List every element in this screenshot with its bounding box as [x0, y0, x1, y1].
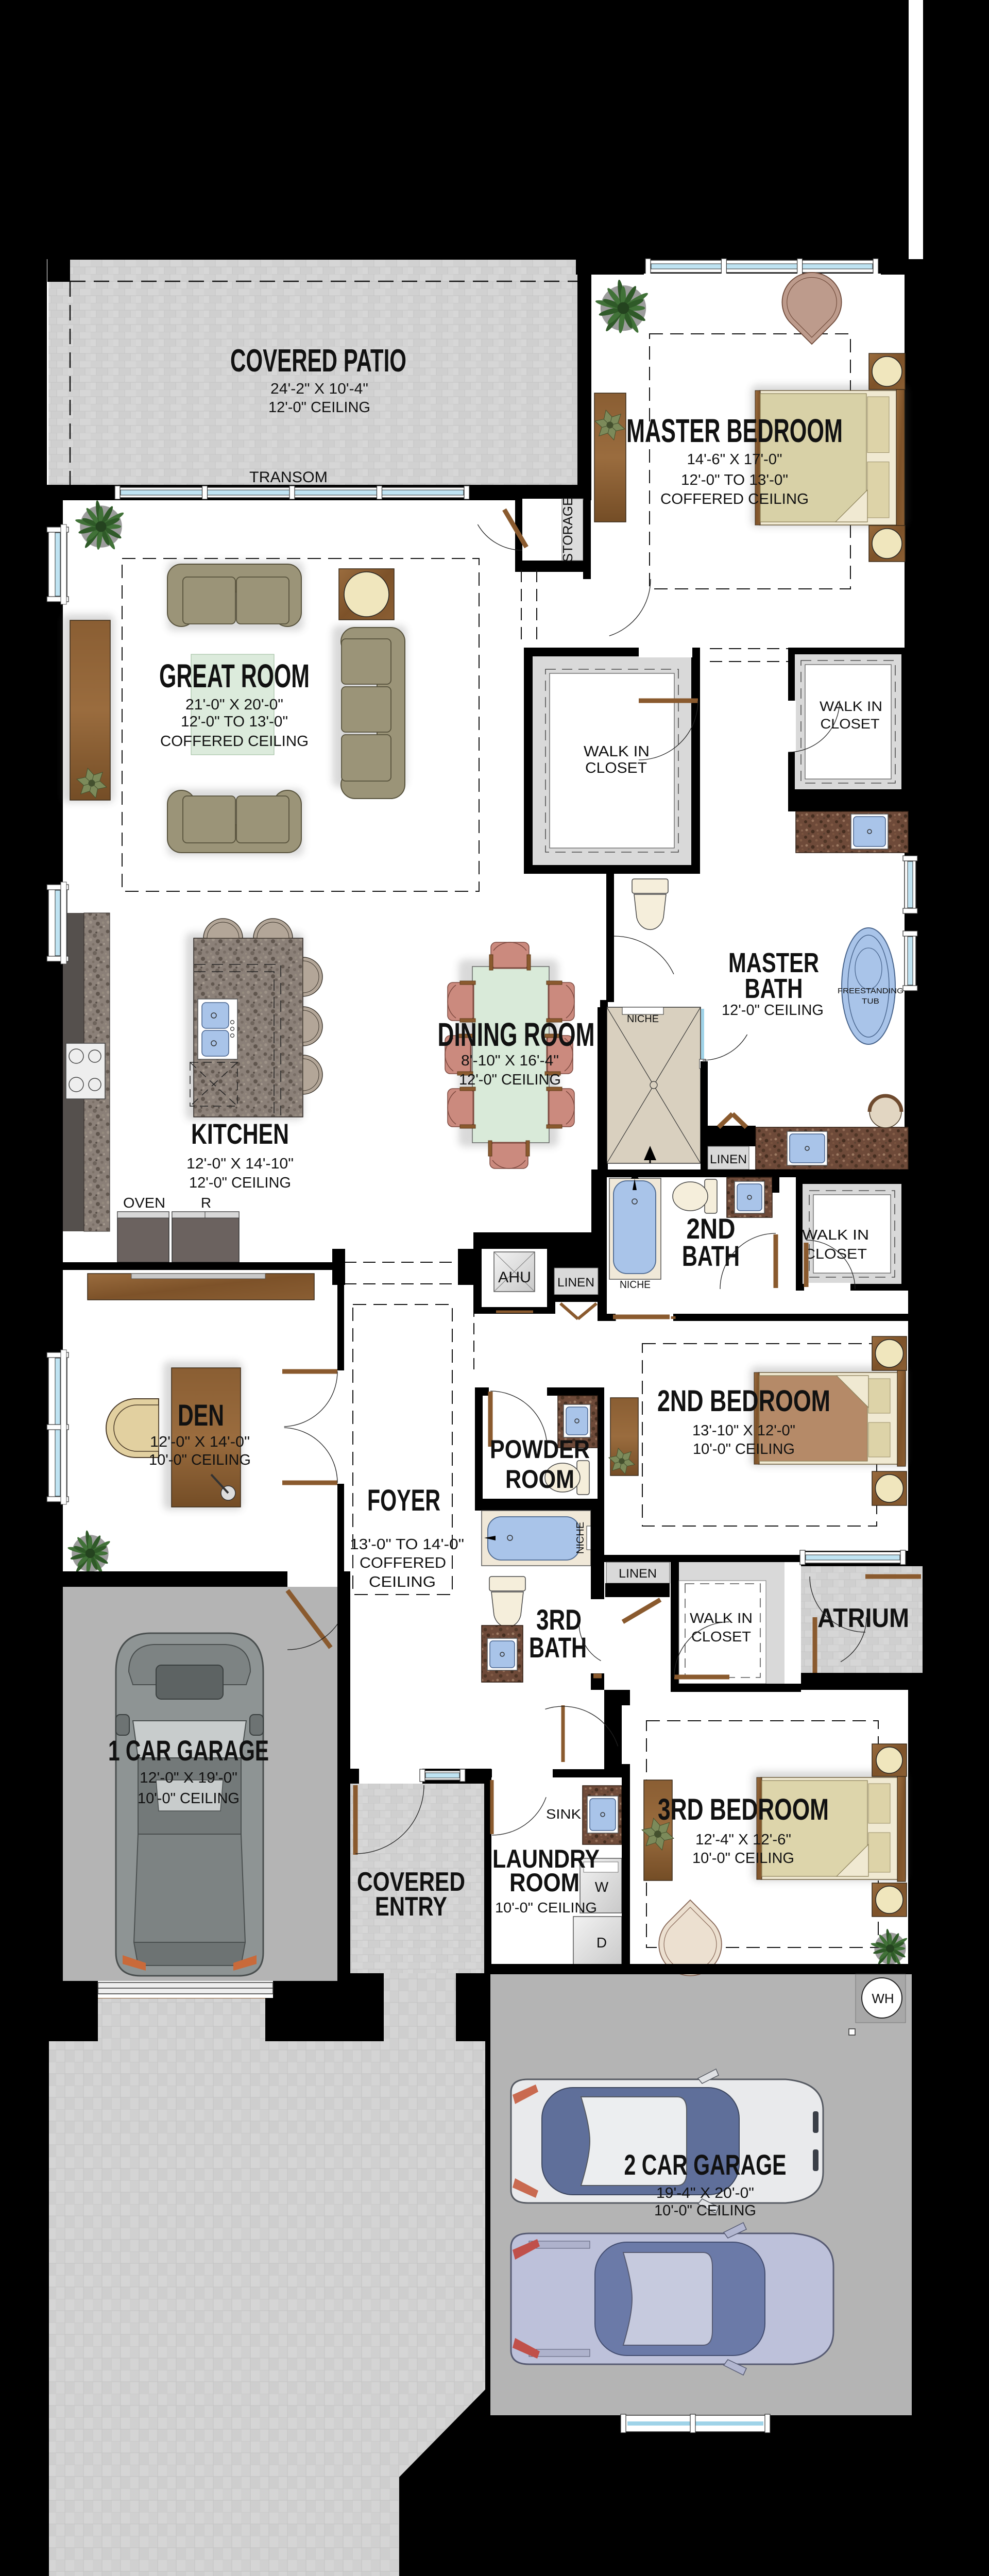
svg-text:BATH: BATH	[529, 1631, 587, 1664]
svg-text:10'-0" CEILING: 10'-0" CEILING	[138, 1790, 240, 1807]
svg-text:ROOM: ROOM	[505, 1465, 574, 1494]
svg-text:10'-0" CEILING: 10'-0" CEILING	[495, 1900, 597, 1916]
svg-text:R: R	[201, 1195, 211, 1211]
svg-text:COFFERED CEILING: COFFERED CEILING	[160, 733, 309, 750]
svg-text:W: W	[595, 1879, 609, 1895]
svg-text:WH: WH	[872, 1991, 894, 2006]
svg-text:MASTER BEDROOM: MASTER BEDROOM	[626, 412, 843, 449]
svg-text:D: D	[596, 1935, 607, 1951]
svg-text:8'-10" X 16'-4": 8'-10" X 16'-4"	[461, 1053, 559, 1069]
svg-text:OVEN: OVEN	[123, 1195, 165, 1211]
svg-text:12'-0" X 14'-10": 12'-0" X 14'-10"	[186, 1156, 294, 1172]
svg-text:12'-0" CEILING: 12'-0" CEILING	[459, 1072, 561, 1088]
svg-text:CLOSET: CLOSET	[585, 760, 647, 776]
svg-text:1 CAR GARAGE: 1 CAR GARAGE	[108, 1734, 269, 1767]
svg-text:FOYER: FOYER	[367, 1484, 440, 1517]
svg-text:STORAGE: STORAGE	[560, 497, 575, 563]
svg-text:14'-6" X 17'-0": 14'-6" X 17'-0"	[687, 451, 782, 468]
svg-text:2ND BEDROOM: 2ND BEDROOM	[657, 1384, 830, 1418]
svg-text:12'-0" TO 13'-0": 12'-0" TO 13'-0"	[681, 472, 788, 488]
svg-text:NICHE: NICHE	[620, 1279, 651, 1291]
svg-text:12'-0" TO 13'-0": 12'-0" TO 13'-0"	[181, 714, 288, 730]
svg-text:12'-0" X 14'-0": 12'-0" X 14'-0"	[150, 1434, 250, 1450]
svg-text:ENTRY: ENTRY	[375, 1892, 447, 1922]
svg-text:10'-0" CEILING: 10'-0" CEILING	[692, 1850, 794, 1867]
svg-text:COFFERED: COFFERED	[360, 1555, 446, 1571]
svg-text:SINK: SINK	[546, 1806, 582, 1822]
svg-text:21'-0" X 20'-0": 21'-0" X 20'-0"	[185, 697, 283, 713]
svg-text:NICHE: NICHE	[575, 1522, 586, 1554]
svg-text:ATRIUM: ATRIUM	[817, 1603, 909, 1633]
svg-text:12'-0" CEILING: 12'-0" CEILING	[268, 399, 370, 416]
svg-text:AHU: AHU	[498, 1269, 531, 1286]
svg-text:TUB: TUB	[862, 997, 879, 1006]
svg-text:TRANSOM: TRANSOM	[249, 469, 328, 486]
svg-text:12'-0" CEILING: 12'-0" CEILING	[189, 1175, 291, 1191]
svg-text:WALK IN: WALK IN	[820, 699, 882, 714]
svg-text:BATH: BATH	[745, 973, 803, 1004]
svg-text:CEILING: CEILING	[369, 1574, 436, 1590]
svg-text:COFFERED CEILING: COFFERED CEILING	[660, 491, 809, 507]
svg-text:LINEN: LINEN	[557, 1276, 594, 1290]
svg-text:LINEN: LINEN	[619, 1567, 657, 1581]
svg-text:10'-0" CEILING: 10'-0" CEILING	[654, 2202, 756, 2219]
svg-text:POWDER: POWDER	[490, 1435, 590, 1464]
svg-text:13'-10" X 12'-0": 13'-10" X 12'-0"	[692, 1422, 795, 1439]
svg-text:24'-2" X 10'-4": 24'-2" X 10'-4"	[270, 381, 368, 397]
svg-text:2 CAR GARAGE: 2 CAR GARAGE	[624, 2148, 787, 2181]
svg-text:GREAT ROOM: GREAT ROOM	[159, 657, 310, 694]
svg-text:NICHE: NICHE	[627, 1013, 659, 1025]
svg-text:CLOSET: CLOSET	[804, 1246, 867, 1262]
svg-text:3RD BEDROOM: 3RD BEDROOM	[658, 1793, 829, 1826]
svg-text:19'-4" X 20'-0": 19'-4" X 20'-0"	[656, 2185, 754, 2201]
svg-text:LINEN: LINEN	[710, 1153, 747, 1166]
svg-text:KITCHEN: KITCHEN	[191, 1117, 289, 1150]
svg-text:12'-0" CEILING: 12'-0" CEILING	[722, 1002, 824, 1019]
svg-text:10'-0" CEILING: 10'-0" CEILING	[693, 1441, 795, 1458]
svg-text:ROOM: ROOM	[509, 1868, 579, 1897]
svg-text:12'-0" X 19'-0": 12'-0" X 19'-0"	[140, 1770, 237, 1786]
svg-text:10'-0" CEILING: 10'-0" CEILING	[149, 1452, 251, 1468]
svg-text:13'-0" TO 14'-0": 13'-0" TO 14'-0"	[350, 1536, 464, 1553]
svg-text:CLOSET: CLOSET	[821, 716, 880, 732]
svg-text:COVERED PATIO: COVERED PATIO	[230, 343, 406, 379]
svg-text:CLOSET: CLOSET	[691, 1629, 751, 1645]
svg-text:DINING ROOM: DINING ROOM	[438, 1016, 595, 1053]
svg-text:DEN: DEN	[178, 1399, 224, 1432]
svg-text:WALK IN: WALK IN	[584, 743, 650, 760]
svg-text:12'-4" X 12'-6": 12'-4" X 12'-6"	[695, 1832, 791, 1848]
svg-text:WALK IN: WALK IN	[690, 1610, 753, 1626]
svg-text:FREESTANDING: FREESTANDING	[838, 987, 903, 995]
